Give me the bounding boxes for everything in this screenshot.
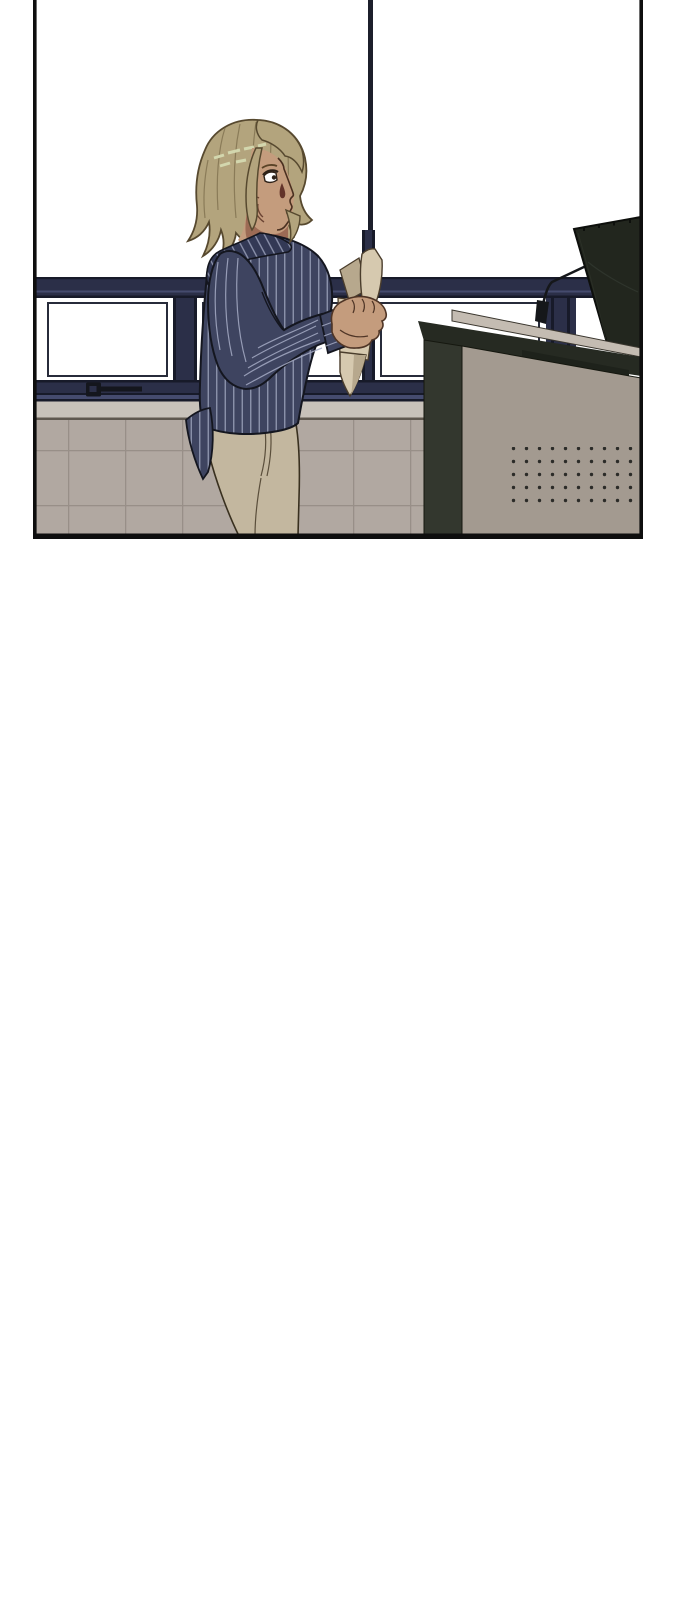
grout-v3 (182, 420, 183, 534)
window-mullion-left (173, 298, 197, 380)
mullion-desk-edge2 (567, 298, 570, 353)
latch-notch (90, 386, 97, 392)
webtoon-page (0, 0, 690, 1600)
paper-top-tip (361, 249, 383, 302)
grout-v1 (68, 420, 69, 534)
pupil (272, 175, 276, 179)
grout-v6 (353, 420, 354, 534)
desk-left-edge (424, 340, 462, 534)
panel-border-right (639, 0, 643, 539)
mullion-left-edge2 (194, 298, 197, 380)
comic-panel (0, 0, 690, 540)
podium-desk (418, 310, 641, 534)
window-top-bar-top-line (37, 277, 640, 279)
panel-border-bottom (33, 534, 643, 540)
speaker-grille (503, 447, 641, 509)
grout-v2 (125, 420, 126, 534)
grout-v7 (410, 420, 411, 534)
panel-border-left (33, 0, 37, 539)
window-top-bar-highlight (37, 291, 640, 293)
mullion-left-edge (173, 298, 176, 380)
page-gutter (0, 540, 690, 1600)
latch-bar (99, 387, 142, 392)
